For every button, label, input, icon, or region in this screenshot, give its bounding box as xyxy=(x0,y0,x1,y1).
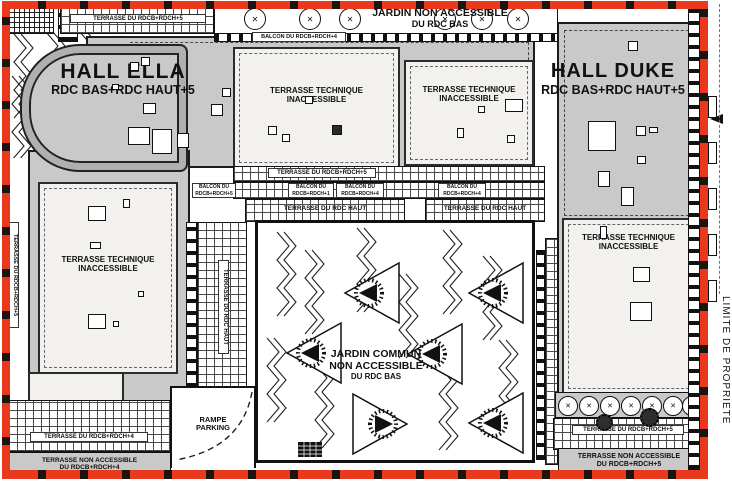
hall-ella-levels: RDC BAS+RDC HAUT+5 xyxy=(13,83,233,97)
balcony-top-label: BALCON DU RDCB+RDCH+4 xyxy=(252,32,346,42)
balcony-line2: RDCB+RDCH+4 xyxy=(337,191,383,198)
hall-ella-name: HALL ELLA xyxy=(23,60,223,84)
zigzag xyxy=(305,250,324,334)
roof-vent xyxy=(211,104,223,116)
band-line1: TERRASSE NON ACCESSIBLE xyxy=(559,453,699,461)
panel-dashed-inner xyxy=(410,66,528,160)
roof-vent xyxy=(649,127,658,133)
shrub-icon xyxy=(596,414,613,431)
band-line2: DU RDCB+RDCH+5 xyxy=(559,461,699,469)
terrace-rdc-haut-vertical-label: TERRASSE DU RDC HAUT xyxy=(218,260,229,354)
terrace-bottom-right-label: TERRASSE DU RDCB+RDCH+5 xyxy=(572,425,684,435)
offset-boundary-dashed xyxy=(719,4,720,294)
shrub-icon xyxy=(640,408,659,427)
roof-vent xyxy=(636,126,646,136)
ramp-arc xyxy=(172,388,256,468)
terrace-left-edge-label: TERRASSE DU RDCB+RDCH+5 xyxy=(9,222,19,328)
terrace-bottom-left-grid xyxy=(8,400,171,452)
terrace-technique-center-right: TERRASSE TECHNIQUE INACCESSIBLE xyxy=(404,60,534,166)
site-plan: TERRASSE DU RDCB+RDCH+5 ✕ ✕ ✕ ✕ ✕ ✕ JARD… xyxy=(0,0,732,483)
zigzag xyxy=(277,232,296,316)
tree-icon: ✕ xyxy=(663,396,683,416)
tree-icon xyxy=(469,263,523,323)
tree-mark: ✕ xyxy=(252,15,259,24)
central-garden-label: JARDIN COMMUN NON ACCESSIBLE DU RDC BAS xyxy=(296,349,456,381)
tree-icon: ✕ xyxy=(621,396,641,416)
balcony-mid-2: BALCON DU RDCB+RDCH+1 xyxy=(288,183,334,198)
balcony-line1: BALCON DU xyxy=(193,184,235,191)
band-line1: TERRASSE NON ACCESSIBLE xyxy=(9,457,170,464)
right-edge-balcony-ladder xyxy=(688,9,700,470)
tree-icon xyxy=(469,393,523,453)
roof-vent-dark xyxy=(332,125,342,135)
tree-mark: ✕ xyxy=(307,15,314,24)
roof-vent xyxy=(268,126,277,135)
tree-icon xyxy=(345,263,399,323)
tree-icon: ✕ xyxy=(558,396,578,416)
central-garden-line1: JARDIN COMMUN xyxy=(296,349,456,361)
roof-vent xyxy=(88,206,106,221)
terrace-rdc-haut-right-label: TERRASSE DU RDC HAUT xyxy=(437,205,533,212)
tree-icon: ✕ xyxy=(299,8,321,30)
balcony-line1: BALCON DU xyxy=(439,184,485,191)
tree-mark: ✕ xyxy=(670,402,676,410)
terrace-technique-center-left: TERRASSE TECHNIQUE INACCESSIBLE xyxy=(233,47,400,169)
roof-vent xyxy=(141,57,150,66)
top-garden-label-1: JARDIN NON ACCESSIBLE xyxy=(355,8,525,20)
tree-icon xyxy=(353,394,407,454)
roof-vent xyxy=(633,267,650,282)
roof-vent xyxy=(621,187,634,206)
zigzag xyxy=(267,338,286,422)
roof-vent xyxy=(113,321,119,327)
tree-mark: ✕ xyxy=(628,402,634,410)
mid-terrace-label: TERRASSE DU RDCB+RDCH+5 xyxy=(268,168,376,178)
tt-label: TERRASSE TECHNIQUE INACCESSIBLE xyxy=(564,234,693,252)
terrace-technique-left: TERRASSE TECHNIQUE INACCESSIBLE xyxy=(38,182,178,374)
roof-vent xyxy=(598,171,610,187)
tt-line2: INACCESSIBLE xyxy=(564,243,693,252)
roof-vent xyxy=(152,129,172,154)
tree-mark: ✕ xyxy=(586,402,592,410)
roof-vent xyxy=(600,226,607,239)
mid-balcony-grid xyxy=(233,182,545,199)
zigzag xyxy=(443,230,462,314)
roof-vent xyxy=(505,99,523,112)
tt-label: TERRASSE TECHNIQUE INACCESSIBLE xyxy=(235,87,398,105)
top-garden-label-2: DU RDC BAS xyxy=(375,19,505,29)
roof-vent xyxy=(478,106,485,113)
property-line-right xyxy=(700,1,708,471)
tree-icon: ✕ xyxy=(600,396,620,416)
terrace-top-left-label: TERRASSE DU RDCB+RDCH+5 xyxy=(70,14,206,23)
roof-vent xyxy=(637,156,646,164)
roof-vent xyxy=(588,121,616,151)
roof-vent xyxy=(123,199,130,208)
parking-ramp-area: RAMPE PARKING xyxy=(170,386,256,468)
central-garden-line3: DU RDC BAS xyxy=(296,373,456,382)
tree-icon: ✕ xyxy=(579,396,599,416)
right-balcony-strip xyxy=(536,250,545,460)
roof-vent xyxy=(143,103,156,114)
balcony-mid-4: BALCON DU RDCB+RDCH+4 xyxy=(438,183,486,198)
terrace-rdc-haut-left-label: TERRASSE DU RDC HAUT xyxy=(265,205,385,212)
protruding-balcony xyxy=(708,234,717,256)
roof-vent xyxy=(128,127,150,145)
balcony-line1: BALCON DU xyxy=(337,184,383,191)
roof-vent xyxy=(90,242,101,249)
entrance-arrow-icon xyxy=(710,114,723,124)
roof-vent xyxy=(177,133,189,148)
property-line-bottom xyxy=(4,470,708,479)
property-limit-label: LIMITE DE PROPRIETE xyxy=(713,296,731,478)
roof-vent xyxy=(282,134,290,142)
roof-vent xyxy=(630,302,652,321)
band-right-label: TERRASSE NON ACCESSIBLE DU RDCB+RDCH+5 xyxy=(559,453,699,469)
left-balcony-strip xyxy=(186,222,197,400)
property-line-left xyxy=(2,1,10,479)
balcony-line2: RDCB+RDCH+4 xyxy=(439,191,485,198)
floor-grille xyxy=(298,442,322,457)
roof-vent xyxy=(628,41,638,51)
hall-duke-name: HALL DUKE xyxy=(513,60,713,82)
central-garden: JARDIN COMMUN NON ACCESSIBLE DU RDC BAS xyxy=(255,220,535,463)
roof-vent xyxy=(457,128,464,138)
protruding-balcony xyxy=(708,142,717,164)
tree-mark: ✕ xyxy=(607,402,613,410)
panel-dashed-inner xyxy=(239,53,394,163)
roof-vent xyxy=(305,96,313,104)
balcony-line2: RDCB+RDCH+5 xyxy=(193,191,235,198)
roof-vent xyxy=(112,84,119,90)
roof-vent xyxy=(507,135,515,143)
terrace-bottom-left-label: TERRASSE DU RDCB+RDCH+4 xyxy=(30,432,148,442)
central-garden-pattern xyxy=(261,226,529,457)
balcony-mid-3: BALCON DU RDCB+RDCH+4 xyxy=(336,183,384,198)
balcony-line2: RDCB+RDCH+1 xyxy=(289,191,333,198)
protruding-balcony xyxy=(708,188,717,210)
roof-vent xyxy=(130,62,139,71)
tt-line2: INACCESSIBLE xyxy=(235,96,398,105)
zigzag xyxy=(399,274,418,358)
roof-vent xyxy=(88,314,106,329)
balcony-line1: BALCON DU xyxy=(289,184,333,191)
tree-mark: ✕ xyxy=(565,402,571,410)
property-line-top xyxy=(4,1,708,9)
balcony-mid-1: BALCON DU RDCB+RDCH+5 xyxy=(192,183,236,198)
tt-label: TERRASSE TECHNIQUE INACCESSIBLE xyxy=(40,256,176,274)
tree-mark: ✕ xyxy=(347,15,354,24)
roof-vent xyxy=(222,88,231,97)
terrace-technique-right: TERRASSE TECHNIQUE INACCESSIBLE xyxy=(562,218,695,395)
panel-dashed-inner xyxy=(44,188,172,368)
tree-icon: ✕ xyxy=(244,8,266,30)
roof-vent xyxy=(138,291,144,297)
central-garden-line2: NON ACCESSIBLE xyxy=(296,361,456,373)
tt-line2: INACCESSIBLE xyxy=(40,265,176,274)
